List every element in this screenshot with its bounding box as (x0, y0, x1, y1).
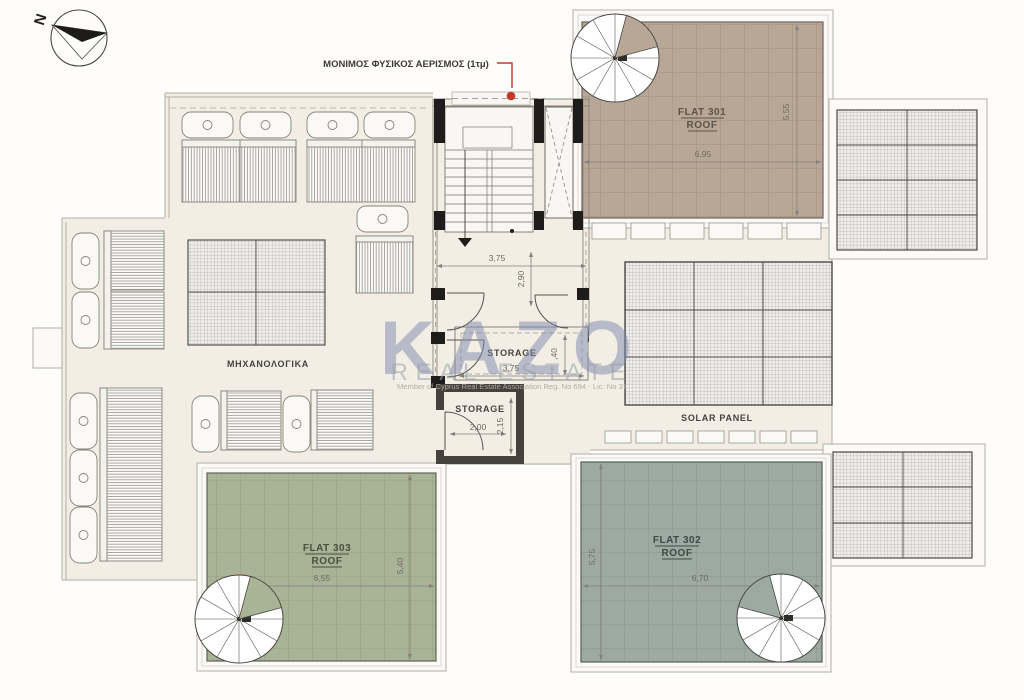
condenser-unit (100, 388, 162, 561)
roof-floor-plan: ΜΗΧΑΝΟΛΟΓΙΚΑ FLAT 301 ROOF 6,95 5,55 SOL… (0, 0, 1024, 700)
solar-panel-grid (833, 452, 972, 558)
water-tank (182, 112, 233, 138)
flat-302-name: FLAT 302 (653, 535, 701, 546)
solar-bank-bottom-right (823, 444, 985, 566)
dim-302-width: 6,70 (692, 573, 709, 583)
left-ledge (33, 328, 62, 368)
solar-collector-panel (188, 240, 325, 345)
storage-lower-room: STORAGE 2,00 2,15 (436, 384, 524, 464)
flat-303-name: FLAT 303 (303, 543, 351, 554)
dim-301-height: 5,55 (781, 103, 791, 120)
dim-302-height: 5,75 (587, 548, 597, 565)
dim-303-height: 5,40 (395, 557, 405, 574)
spiral-staircase-303 (195, 575, 283, 663)
flat-301-type: ROOF (687, 120, 718, 131)
vent-note-text: ΜΟΝΙΜΟΣ ΦΥΣΙΚΟΣ ΑΕΡΙΣΜΟΣ (1τμ) (323, 59, 489, 70)
water-tank (240, 112, 291, 138)
kazo-watermark: KAZO REAL ESTATE Member of Cyprus Real E… (380, 306, 644, 391)
water-tank (364, 112, 415, 138)
water-tank (70, 507, 97, 563)
condenser-units (104, 231, 164, 349)
storage-lower-label: STORAGE (455, 404, 504, 414)
vent-marker-dot (507, 92, 516, 101)
solar-panel-grid-main (625, 262, 832, 405)
water-tank (72, 292, 99, 348)
mechanical-zone-label: ΜΗΧΑΝΟΛΟΓΙΚΑ (227, 359, 309, 369)
flat-302-type: ROOF (662, 548, 693, 559)
vent-leader-line (497, 63, 512, 88)
dim-301-width: 6,95 (695, 149, 712, 159)
north-compass: N (31, 10, 107, 66)
flat-301-name: FLAT 301 (678, 107, 726, 118)
solar-bank-top-right (829, 99, 987, 259)
watermark-registration: Member of Cyprus Real Estate Association… (397, 382, 627, 391)
dim-303-width: 6,55 (314, 573, 331, 583)
flat-303-type: ROOF (312, 556, 343, 567)
solar-panel-label: SOLAR PANEL (681, 413, 753, 423)
water-tank (192, 396, 219, 452)
water-tank (283, 396, 310, 452)
condenser-unit (311, 390, 373, 450)
dim-stair-depth: 2,90 (516, 270, 526, 287)
plan-canvas: ΜΗΧΑΝΟΛΟΓΙΚΑ FLAT 301 ROOF 6,95 5,55 SOL… (0, 0, 1024, 700)
water-tank (72, 233, 99, 289)
north-label: N (31, 12, 51, 28)
dim-storage-lower-width: 2,00 (470, 422, 487, 432)
water-tank (70, 450, 97, 506)
water-tank (307, 112, 358, 138)
spiral-staircase-302 (737, 574, 825, 662)
spiral-staircase-301 (571, 14, 659, 102)
condenser-unit (356, 236, 413, 293)
water-tank (357, 206, 408, 232)
water-tank (70, 393, 97, 449)
condenser-unit (221, 391, 281, 450)
dim-stair-width: 3,75 (489, 253, 506, 263)
dim-storage-lower-depth: 2,15 (495, 417, 505, 434)
vent-boxes-row (605, 431, 817, 443)
